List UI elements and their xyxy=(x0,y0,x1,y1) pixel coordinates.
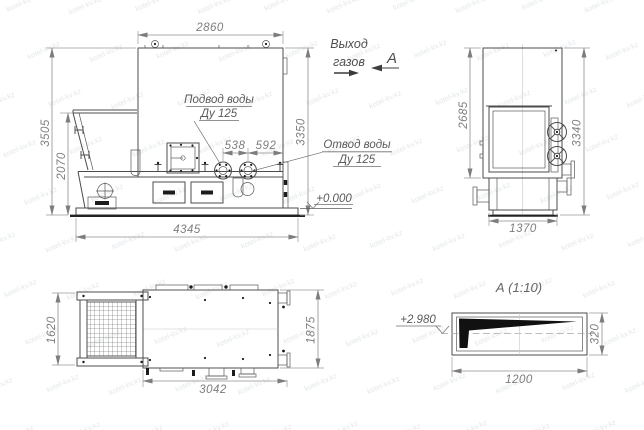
dim-3042: 3042 xyxy=(199,384,227,396)
dim-3340: 3340 xyxy=(572,119,584,147)
svg-text:Выход: Выход xyxy=(330,37,368,51)
svg-text:Ду 125: Ду 125 xyxy=(199,108,238,120)
drawing-svg: kotel-kv.kz kotel-kv.kz xyxy=(0,0,644,430)
grate-mesh xyxy=(87,302,136,356)
dim-1875: 1875 xyxy=(306,316,318,344)
dim-1200: 1200 xyxy=(505,374,533,386)
svg-text:Подвод воды: Подвод воды xyxy=(184,94,254,106)
dim-320: 320 xyxy=(590,324,602,345)
dim-2070: 2070 xyxy=(56,152,68,181)
dim-1370: 1370 xyxy=(509,223,537,235)
elevation-2980-label: +2.980 xyxy=(400,314,436,326)
elevation-zero-label: +0.000 xyxy=(316,193,352,205)
view-a-letter: А xyxy=(386,50,397,67)
technical-drawing: kotel-kv.kz kotel-kv.kz xyxy=(0,0,644,430)
dim-538: 538 xyxy=(225,140,246,152)
detail-a-title: А (1:10) xyxy=(495,280,542,295)
dim-2685: 2685 xyxy=(458,101,470,130)
svg-text:Ду 125: Ду 125 xyxy=(337,154,376,166)
dim-3350: 3350 xyxy=(296,118,308,146)
svg-text:газов: газов xyxy=(333,55,365,69)
dim-1620: 1620 xyxy=(46,316,58,344)
dim-592: 592 xyxy=(256,140,277,152)
svg-text:Отвод воды: Отвод воды xyxy=(323,139,391,151)
dim-4345: 4345 xyxy=(173,224,201,236)
dim-2860: 2860 xyxy=(195,22,224,34)
dim-3505: 3505 xyxy=(40,119,52,147)
